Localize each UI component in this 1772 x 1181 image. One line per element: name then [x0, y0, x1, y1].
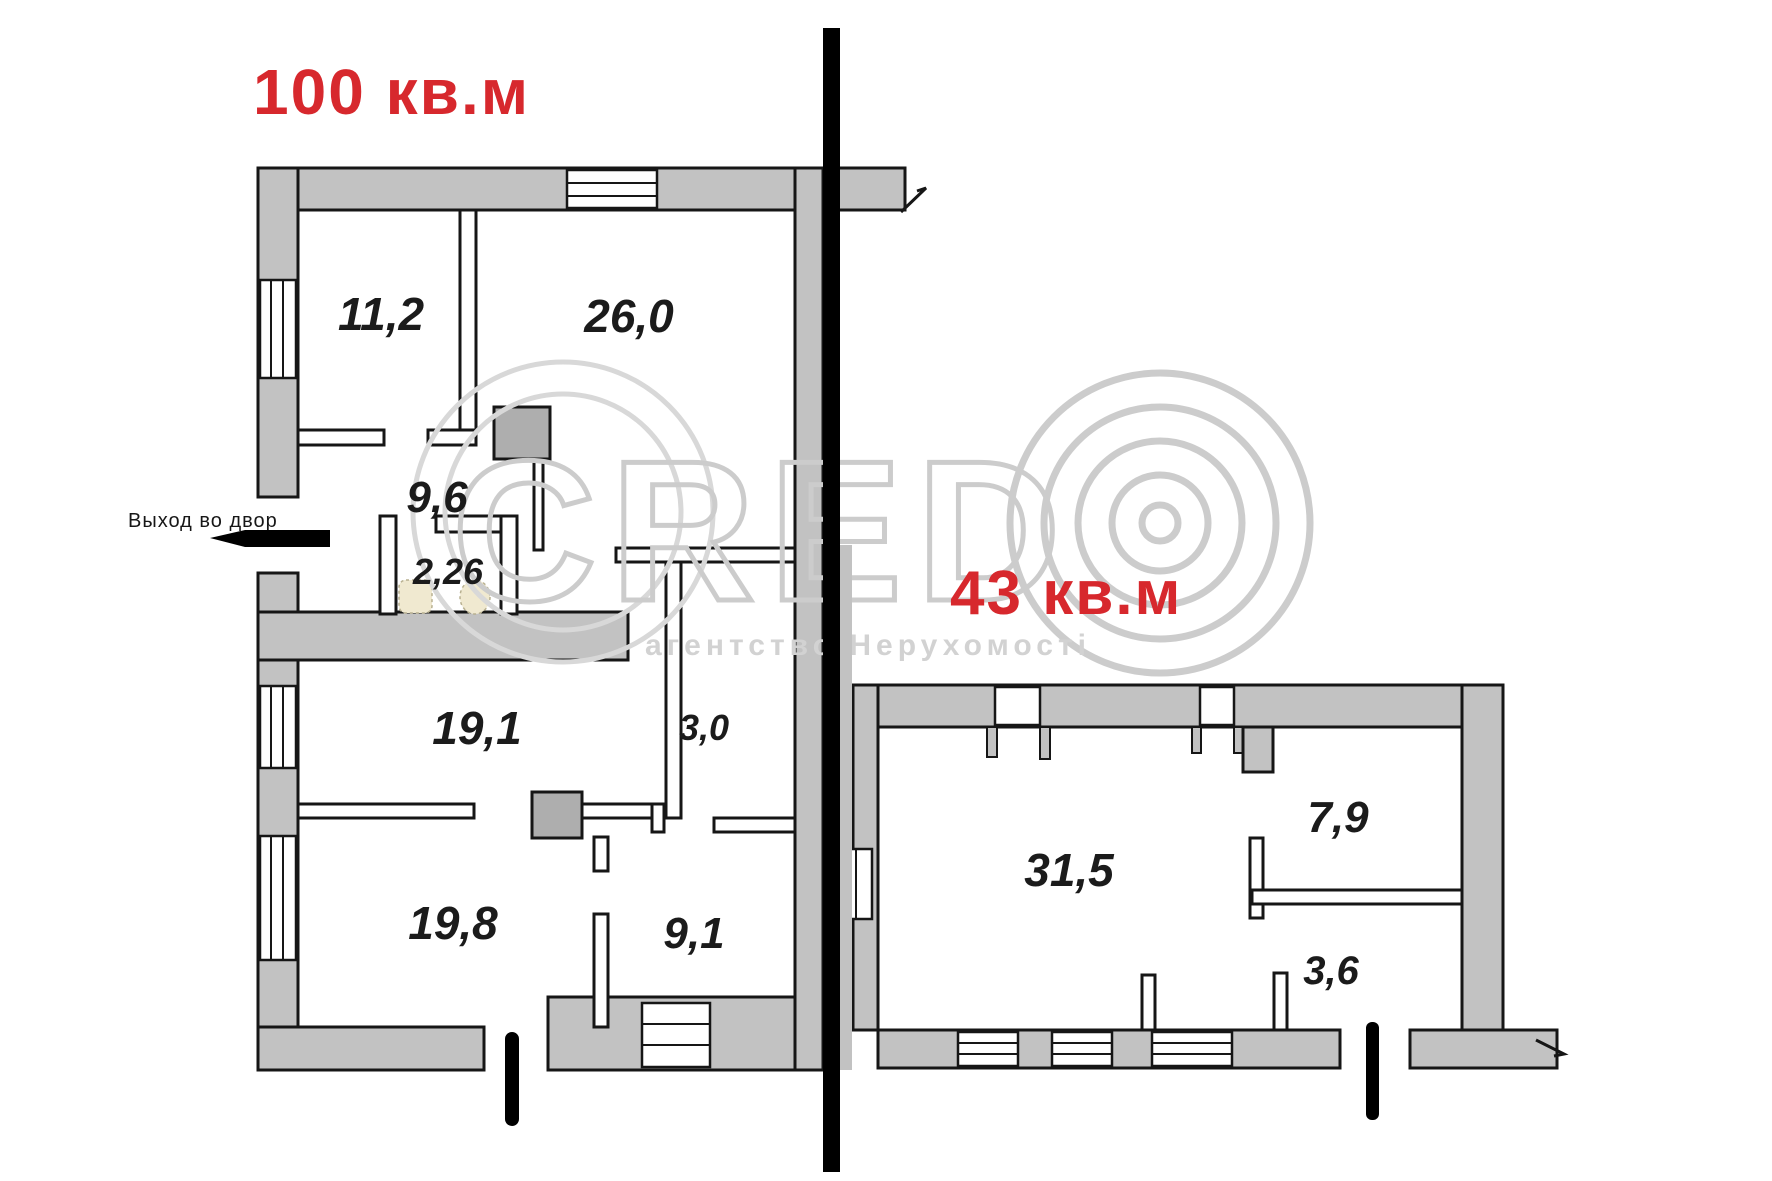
area-label-31-5: 31,5 — [1024, 844, 1115, 896]
area-label-19-1: 19,1 — [432, 702, 522, 754]
area-label-26-0: 26,0 — [583, 290, 674, 342]
door-opening — [995, 687, 1040, 725]
exit-annotation: Выход во двор — [128, 510, 330, 547]
door-post — [1040, 727, 1050, 759]
floor-plan-page: CRED агентство Нерухомості 11,2 26,0 9,6… — [0, 0, 1772, 1181]
window — [1152, 1032, 1232, 1066]
watermark-subtitle: агентство Нерухомості — [645, 629, 1091, 662]
right-apartment-partitions — [1142, 838, 1462, 1030]
partition-wall — [652, 804, 664, 832]
partition-wall — [1274, 973, 1287, 1030]
window — [260, 280, 296, 378]
door-opening — [1200, 687, 1234, 725]
area-label-11-2: 11,2 — [338, 288, 425, 340]
partition-wall — [460, 210, 476, 445]
window — [1052, 1032, 1112, 1066]
partition-wall — [714, 818, 795, 832]
exit-arrow-icon — [210, 530, 330, 547]
stove-icon — [532, 792, 582, 838]
partition-wall — [298, 804, 474, 818]
divider-wall-strip — [840, 545, 852, 1070]
wall — [1243, 727, 1273, 772]
right-apartment-walls — [840, 685, 1557, 1068]
partition-wall — [1142, 975, 1155, 1030]
window — [642, 1003, 710, 1067]
wall — [1462, 685, 1503, 1030]
door-marker — [1366, 1022, 1379, 1120]
left-apartment-title: 100 кв.м — [253, 56, 530, 128]
window — [958, 1032, 1018, 1066]
partition-wall — [1250, 838, 1263, 918]
right-apartment-title: 43 кв.м — [950, 559, 1182, 628]
wall — [840, 685, 1503, 727]
door-post — [987, 727, 997, 757]
window — [260, 836, 296, 960]
wc-wall — [380, 516, 396, 614]
area-label-19-8: 19,8 — [408, 897, 498, 949]
wall — [1410, 1030, 1557, 1068]
floor-plan-drawing: CRED агентство Нерухомості 11,2 26,0 9,6… — [0, 0, 1772, 1181]
area-label-3-0: 3,0 — [679, 707, 729, 748]
area-label-3-6: 3,6 — [1303, 949, 1359, 993]
exit-to-yard-label: Выход во двор — [128, 510, 278, 532]
area-label-9-6: 9,6 — [406, 473, 468, 522]
area-label-2-26: 2,26 — [412, 551, 484, 592]
wall — [258, 1027, 484, 1070]
partition-wall — [1252, 890, 1462, 904]
partition-wall — [594, 914, 608, 1027]
door-post — [1192, 727, 1201, 753]
right-apartment-windows — [958, 1032, 1232, 1066]
area-label-9-1: 9,1 — [663, 909, 724, 958]
window — [260, 686, 296, 768]
door-marker — [505, 1032, 519, 1126]
partition-wall — [298, 430, 384, 445]
partition-wall — [594, 837, 608, 871]
divider-line — [823, 28, 840, 1172]
window — [567, 170, 657, 208]
area-label-7-9: 7,9 — [1307, 793, 1369, 842]
